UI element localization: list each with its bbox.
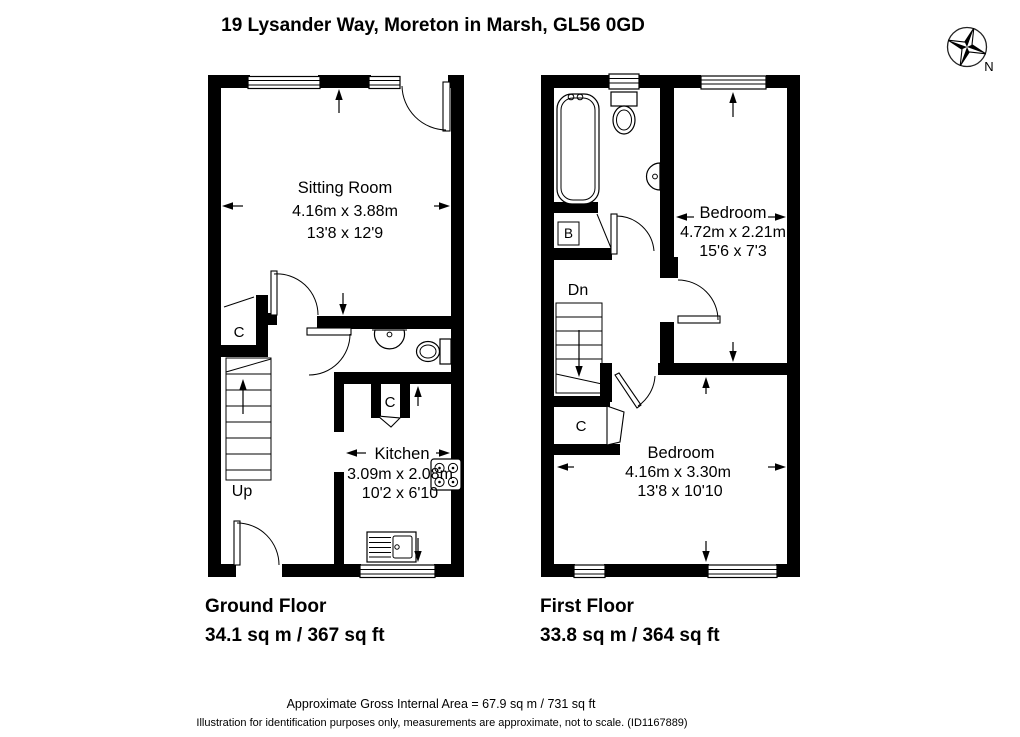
window <box>708 565 777 578</box>
dim-imperial-bedroom2: 13'8 x 10'10 <box>637 483 722 500</box>
sink-unit <box>367 532 416 562</box>
page-title: 19 Lysander Way, Moreton in Marsh, GL56 … <box>221 15 645 36</box>
first-floor-plan: Bedroom 4.72m x 2.21m 15'6 x 7'3 Bedroom… <box>541 74 800 578</box>
window <box>609 74 639 89</box>
kitchen-cupboard-label: C <box>385 394 396 411</box>
room-label-sitting-room: Sitting Room <box>298 179 392 197</box>
ground-floor-area: 34.1 sq m / 367 sq ft <box>205 625 385 646</box>
door-swing <box>271 271 318 315</box>
compass-icon: N <box>948 28 994 75</box>
ground-floor-caption: Ground Floor <box>205 596 327 617</box>
door-swing <box>615 373 655 408</box>
room-label-bedroom1: Bedroom <box>700 204 767 222</box>
first-floor-area: 33.8 sq m / 364 sq ft <box>540 625 720 646</box>
door-swing <box>307 328 351 375</box>
door-swing <box>402 82 450 131</box>
dim-metric-sitting-room: 4.16m x 3.88m <box>292 203 398 220</box>
room-label-bedroom2: Bedroom <box>648 444 715 462</box>
ground-floor-plan: Sitting Room 4.16m x 3.88m 13'8 x 12'9 K… <box>208 75 464 578</box>
stairs-up <box>226 358 271 480</box>
cupboard-label: C <box>234 324 245 341</box>
stairs-up-label: Up <box>232 483 253 500</box>
floorplan-canvas: 19 Lysander Way, Moreton in Marsh, GL56 … <box>0 0 1020 737</box>
boiler-label: B <box>564 226 573 241</box>
cupboard-door <box>378 416 400 427</box>
door-swing <box>678 280 720 323</box>
floor-captions: Ground Floor 34.1 sq m / 367 sq ft First… <box>205 596 720 646</box>
window <box>248 77 320 89</box>
bathtub <box>557 94 599 204</box>
boiler-cupboard-door <box>597 214 611 248</box>
window <box>701 76 766 89</box>
dim-imperial-kitchen: 10'2 x 6'10 <box>362 485 438 502</box>
wash-basin <box>647 163 661 190</box>
cupboard-label: C <box>576 418 587 435</box>
cupboard-door <box>224 297 254 307</box>
dim-metric-bedroom2: 4.16m x 3.30m <box>625 464 731 481</box>
north-label: N <box>984 59 993 74</box>
dim-imperial-bedroom1: 15'6 x 7'3 <box>699 243 767 260</box>
door-swing <box>234 521 279 565</box>
dim-metric-kitchen: 3.09m x 2.08m <box>347 466 453 483</box>
stairs-down <box>556 303 602 393</box>
toilet <box>417 339 452 364</box>
room-label-kitchen: Kitchen <box>374 445 429 463</box>
footer: Approximate Gross Internal Area = 67.9 s… <box>196 697 687 729</box>
door-swing <box>611 214 654 254</box>
window <box>574 565 605 578</box>
gross-area-text: Approximate Gross Internal Area = 67.9 s… <box>287 697 596 711</box>
toilet <box>611 92 637 134</box>
window <box>369 77 400 89</box>
dim-metric-bedroom1: 4.72m x 2.21m <box>680 224 786 241</box>
floorplan-page: 19 Lysander Way, Moreton in Marsh, GL56 … <box>0 0 1020 737</box>
first-floor-caption: First Floor <box>540 596 635 617</box>
disclaimer-text: Illustration for identification purposes… <box>196 717 687 729</box>
window <box>360 565 435 578</box>
dim-imperial-sitting-room: 13'8 x 12'9 <box>307 225 383 242</box>
cupboard-door <box>607 406 624 445</box>
wash-basin <box>372 330 407 349</box>
stairs-down-label: Dn <box>568 282 588 299</box>
